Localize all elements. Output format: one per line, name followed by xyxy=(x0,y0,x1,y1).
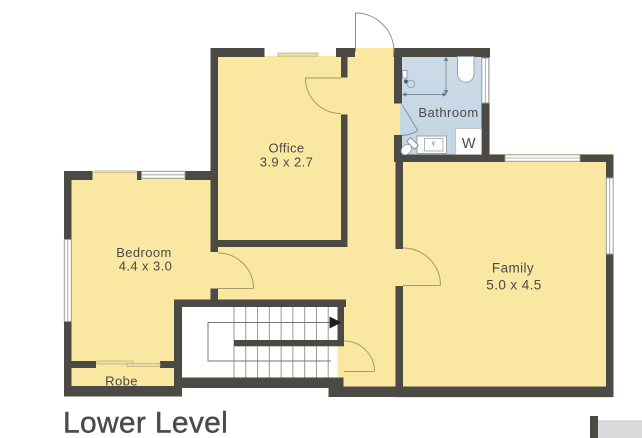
svg-text:Lower Level: Lower Level xyxy=(63,407,228,438)
svg-text:3.9 x 2.7: 3.9 x 2.7 xyxy=(260,155,313,170)
svg-text:Bathroom: Bathroom xyxy=(418,105,478,120)
svg-text:Family: Family xyxy=(492,261,534,276)
svg-text:W: W xyxy=(462,136,476,152)
svg-text:5.0 x 4.5: 5.0 x 4.5 xyxy=(486,278,541,293)
svg-text:Robe: Robe xyxy=(105,374,138,389)
svg-text:Office: Office xyxy=(268,141,304,156)
svg-text:4.4 x 3.0: 4.4 x 3.0 xyxy=(119,259,172,274)
